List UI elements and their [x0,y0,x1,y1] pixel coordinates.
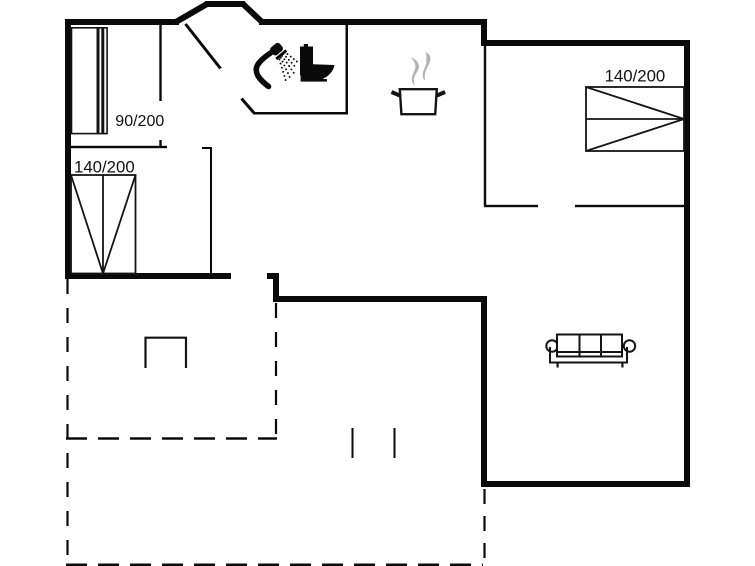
svg-text:140/200: 140/200 [74,157,135,176]
svg-text:90/200: 90/200 [115,113,164,130]
svg-text:140/200: 140/200 [605,67,666,86]
